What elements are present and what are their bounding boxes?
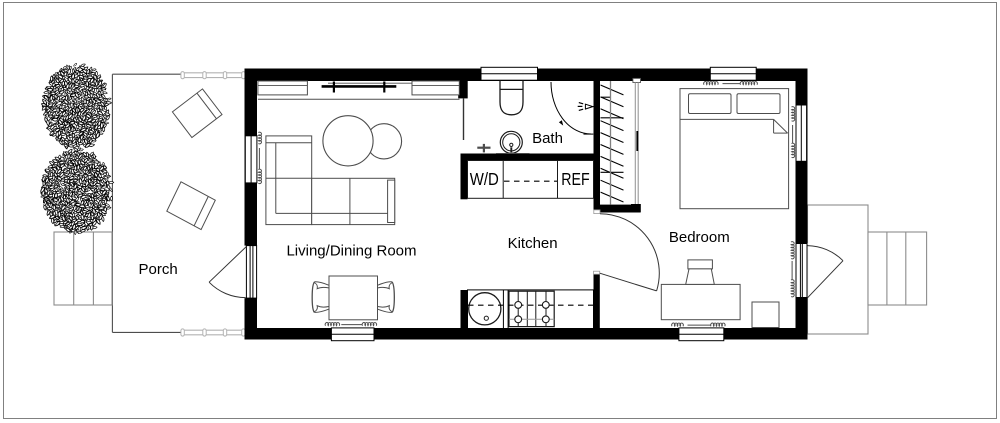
svg-text:Kitchen: Kitchen xyxy=(508,235,558,252)
svg-text:Bedroom: Bedroom xyxy=(669,229,730,246)
svg-text:Bath: Bath xyxy=(532,130,563,147)
svg-text:REF: REF xyxy=(561,169,589,189)
svg-text:Porch: Porch xyxy=(139,261,178,278)
svg-text:W/D: W/D xyxy=(470,169,499,189)
svg-text:Living/Dining Room: Living/Dining Room xyxy=(286,242,416,259)
